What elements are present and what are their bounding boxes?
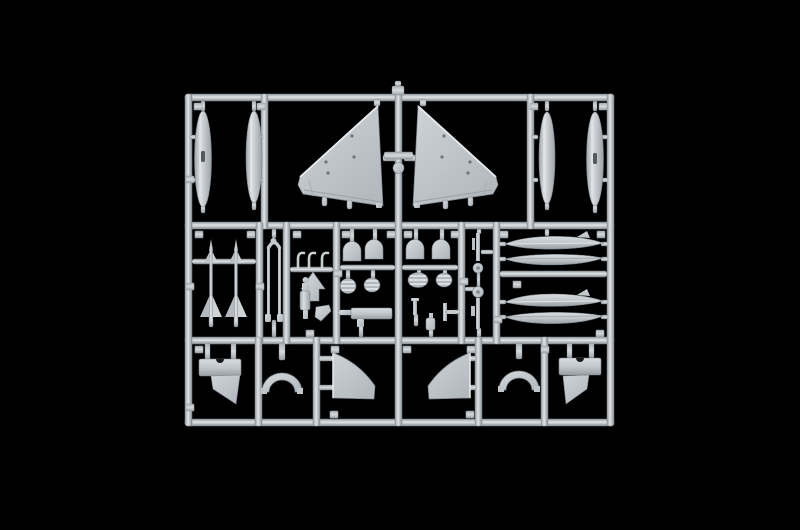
pump-shaped-part <box>303 277 309 283</box>
part-number-tag <box>494 316 502 323</box>
wing-hole <box>468 160 471 163</box>
connector-stub <box>392 86 404 95</box>
part-number-tag <box>466 411 474 418</box>
dome-part-b <box>365 240 383 259</box>
dome-part-a <box>343 242 361 262</box>
connector-stub <box>440 228 444 241</box>
fuel-tank-half-d <box>587 112 604 206</box>
connector-stub <box>231 343 236 360</box>
part-number-tag <box>596 330 604 337</box>
part-number-tag <box>334 270 342 277</box>
pump-shaped-part <box>300 291 310 310</box>
landing-gear-strut-a <box>472 238 475 250</box>
runner-mid-band-e <box>493 222 500 344</box>
part-number-tag <box>195 346 203 353</box>
gear-wheel-hub <box>476 266 480 270</box>
connector-stub <box>346 270 350 279</box>
pump-shaped-part <box>303 310 308 319</box>
wing-actuator-tab <box>347 200 352 209</box>
grille-part-c <box>408 273 428 288</box>
photo-of-model-kit-sprue <box>0 0 800 530</box>
bottle-part <box>426 318 435 330</box>
connector-stub <box>532 135 538 139</box>
connector-stub <box>545 101 549 111</box>
connector-stub <box>589 343 594 358</box>
canopy-frame-part <box>265 314 271 322</box>
part-number-tag <box>342 231 350 238</box>
part-number-tag <box>513 281 521 288</box>
gun-pod-part <box>340 310 352 315</box>
grille-part-d <box>436 273 452 287</box>
part-number-tag <box>257 103 265 110</box>
wing-actuator-tab <box>468 197 473 206</box>
fuel-tank-slot-hole <box>593 153 597 164</box>
wing-actuator-tab <box>322 197 327 206</box>
connector-stub <box>350 228 354 243</box>
gun-pod-part <box>357 319 364 327</box>
wing-actuator-tab <box>443 200 448 209</box>
dome-part-c <box>406 240 424 259</box>
connector-stub <box>481 250 493 254</box>
part-number-tag <box>530 103 538 110</box>
grille-part-b <box>364 278 380 292</box>
part-number-tag <box>500 231 508 238</box>
dome-part-b <box>365 240 383 259</box>
connector-stub <box>252 101 256 111</box>
connector-stub <box>272 320 276 337</box>
part-number-tag <box>331 346 339 353</box>
part-number-tag <box>403 346 411 353</box>
gear-wheel-hub <box>476 290 480 294</box>
connector-stub <box>395 81 401 86</box>
fuel-tank-half-c <box>539 112 555 204</box>
grille-part-a <box>340 279 356 294</box>
runner-bottom-band-b <box>313 337 320 426</box>
fuel-tank-half-a <box>195 111 212 207</box>
connector-stub <box>414 228 418 241</box>
runner-mid-band-b <box>283 222 290 344</box>
connector-stub <box>532 178 538 182</box>
connector-stub <box>545 229 549 236</box>
connector-stub <box>205 343 210 360</box>
connector-stub <box>477 271 480 288</box>
runner-center-vertical <box>395 94 402 426</box>
pump-shaped-part <box>302 283 309 292</box>
part-number-tag <box>597 231 605 238</box>
part-number-tag <box>404 231 412 238</box>
arch-foot <box>534 386 540 392</box>
fuel-tank-slot-hole <box>201 151 205 162</box>
wing-hole <box>466 171 469 174</box>
connector-stub <box>414 314 418 326</box>
wing-hole <box>440 155 443 158</box>
connector-stub <box>319 385 334 390</box>
gun-pod-part <box>351 308 392 319</box>
fuel-tank-half-b <box>246 111 262 203</box>
landing-gear-strut-b <box>476 298 480 329</box>
runner-tank-column <box>500 271 607 277</box>
wing-actuator-tab <box>414 203 420 208</box>
connector-stub <box>567 343 572 358</box>
connector-stub <box>374 99 380 106</box>
canopy-frame-part <box>277 314 283 322</box>
runner-top-band-b <box>527 94 534 229</box>
connector-stub <box>371 270 375 279</box>
landing-gear-strut-b <box>471 306 475 316</box>
runner-cluster-row <box>290 267 333 272</box>
arch-foot <box>498 386 504 392</box>
canopy-frame-part <box>278 246 281 316</box>
part-number-tag <box>195 231 203 238</box>
fuel-tank-half-b <box>246 111 262 203</box>
missile-center-fin <box>235 296 237 320</box>
part-number-tag <box>599 103 607 110</box>
canopy-frame-part <box>267 246 270 316</box>
wing-hole <box>324 160 327 163</box>
arch-foot <box>297 388 303 394</box>
runner-bottom-band-a <box>255 337 262 426</box>
dome-part-d <box>432 240 450 259</box>
dome-part-d <box>432 240 450 259</box>
part-number-tag <box>194 103 202 110</box>
connector-stub <box>420 99 426 106</box>
center-rail-knob <box>393 163 404 174</box>
connector-stub <box>593 101 597 111</box>
arch-foot <box>261 388 267 394</box>
dome-part-a <box>343 242 361 262</box>
part-number-tag <box>451 231 459 238</box>
runner-bottom-band-c <box>475 337 482 426</box>
connector-stub <box>477 328 481 337</box>
sprue-svg <box>0 0 800 530</box>
part-number-tag <box>186 176 194 183</box>
connector-stub <box>279 343 285 360</box>
part-number-tag <box>330 411 338 418</box>
connector-stub <box>272 229 276 238</box>
wing-hole <box>352 155 355 158</box>
part-number-tag <box>293 231 301 238</box>
missile-center-fin <box>210 296 212 320</box>
bracket-part <box>443 303 447 321</box>
runner-grille-row-b <box>402 265 458 270</box>
part-number-tag <box>256 283 264 290</box>
part-number-tag <box>467 346 475 353</box>
wing-hole <box>442 134 445 137</box>
fuel-tank-half-c <box>539 112 555 204</box>
part-number-tag <box>186 404 194 411</box>
connector-stub <box>373 228 377 241</box>
part-number-tag <box>306 330 314 337</box>
part-number-tag <box>387 231 395 238</box>
connector-stub <box>516 343 522 359</box>
wing-actuator-tab <box>376 203 382 208</box>
part-number-tag <box>247 231 255 238</box>
runner-left <box>185 94 192 426</box>
dome-part-c <box>406 240 424 259</box>
pin-part <box>413 300 417 315</box>
part-number-tag <box>186 283 194 290</box>
part-number-tag <box>541 346 549 353</box>
runner-missile-rod <box>192 259 256 264</box>
landing-gear-strut-a <box>476 233 480 261</box>
connector-stub <box>319 356 334 361</box>
part-number-tag <box>460 278 468 285</box>
center-rail-bracket <box>384 152 413 159</box>
runner-mid-band-c <box>333 222 340 344</box>
runner-grille-row-a <box>340 265 395 270</box>
wing-hole <box>326 171 329 174</box>
wing-hole <box>350 134 353 137</box>
bracket-part <box>447 310 455 314</box>
